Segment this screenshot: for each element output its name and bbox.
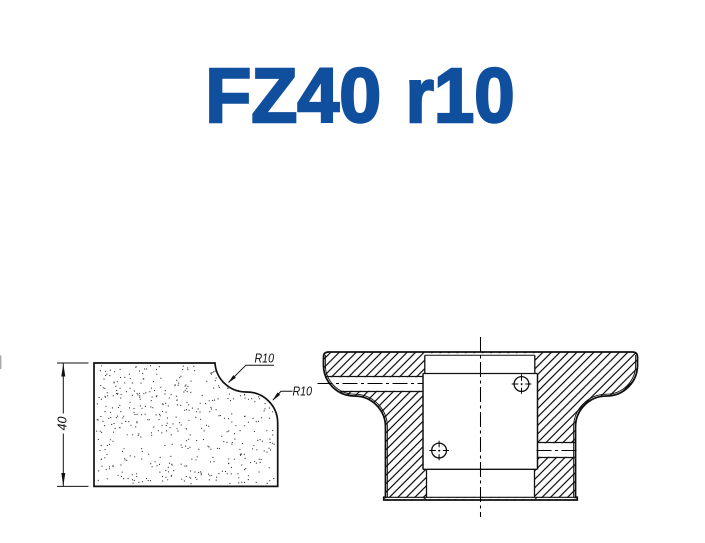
svg-text:R10: R10 (255, 352, 275, 366)
svg-text:R10: R10 (293, 385, 313, 399)
svg-text:r10: r10 (406, 53, 515, 139)
svg-text:40: 40 (55, 417, 69, 431)
svg-text:FZ40: FZ40 (205, 53, 381, 139)
